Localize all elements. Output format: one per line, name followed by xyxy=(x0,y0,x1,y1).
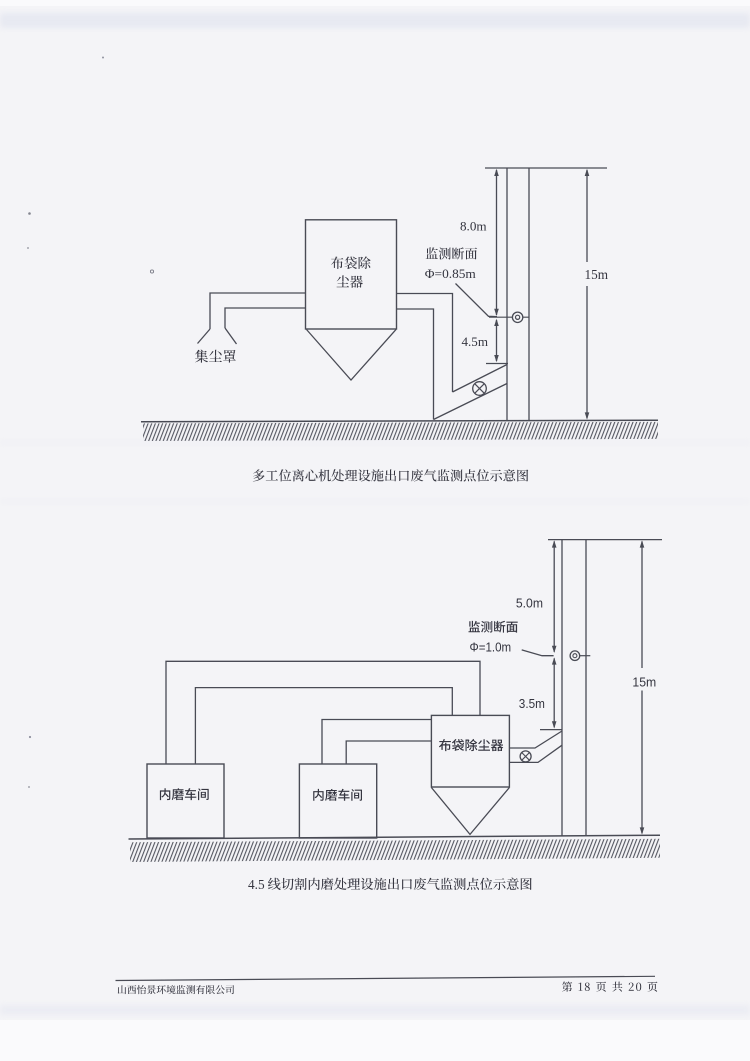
svg-text:Φ=1.0m: Φ=1.0m xyxy=(470,641,512,655)
svg-text:15m: 15m xyxy=(585,268,609,283)
svg-text:Φ=0.85m: Φ=0.85m xyxy=(425,267,476,281)
svg-text:5.0m: 5.0m xyxy=(516,595,543,610)
svg-text:15m: 15m xyxy=(632,674,656,689)
svg-text:3.5m: 3.5m xyxy=(519,696,545,711)
svg-text:4.5: 4.5 xyxy=(248,877,265,892)
svg-text:4.5m: 4.5m xyxy=(462,334,489,349)
svg-text:8.0m: 8.0m xyxy=(460,218,487,233)
